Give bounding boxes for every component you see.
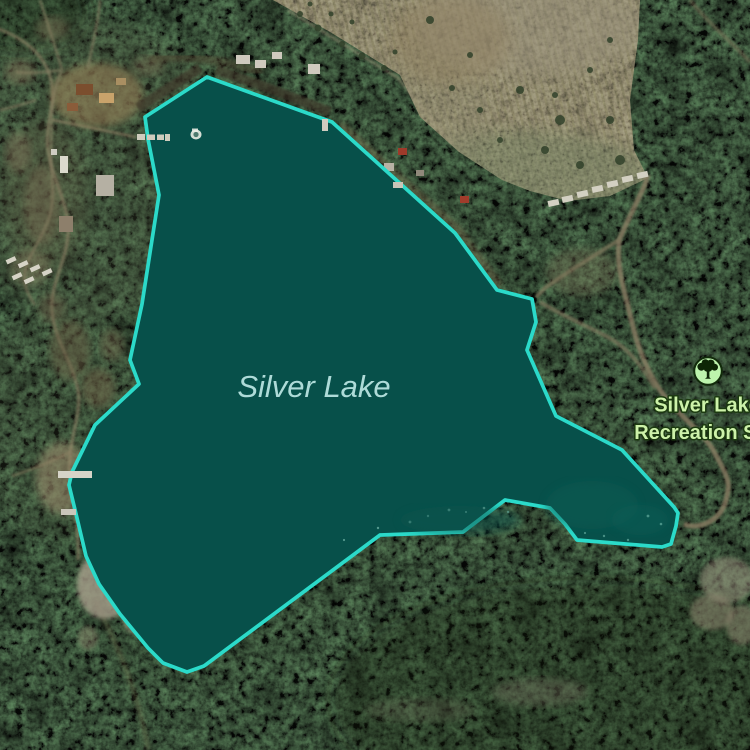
svg-text:Recreation Site: Recreation Site: [634, 422, 750, 444]
svg-text:Silver Lake: Silver Lake: [654, 395, 750, 417]
svg-text:Silver Lake: Silver Lake: [237, 369, 390, 404]
